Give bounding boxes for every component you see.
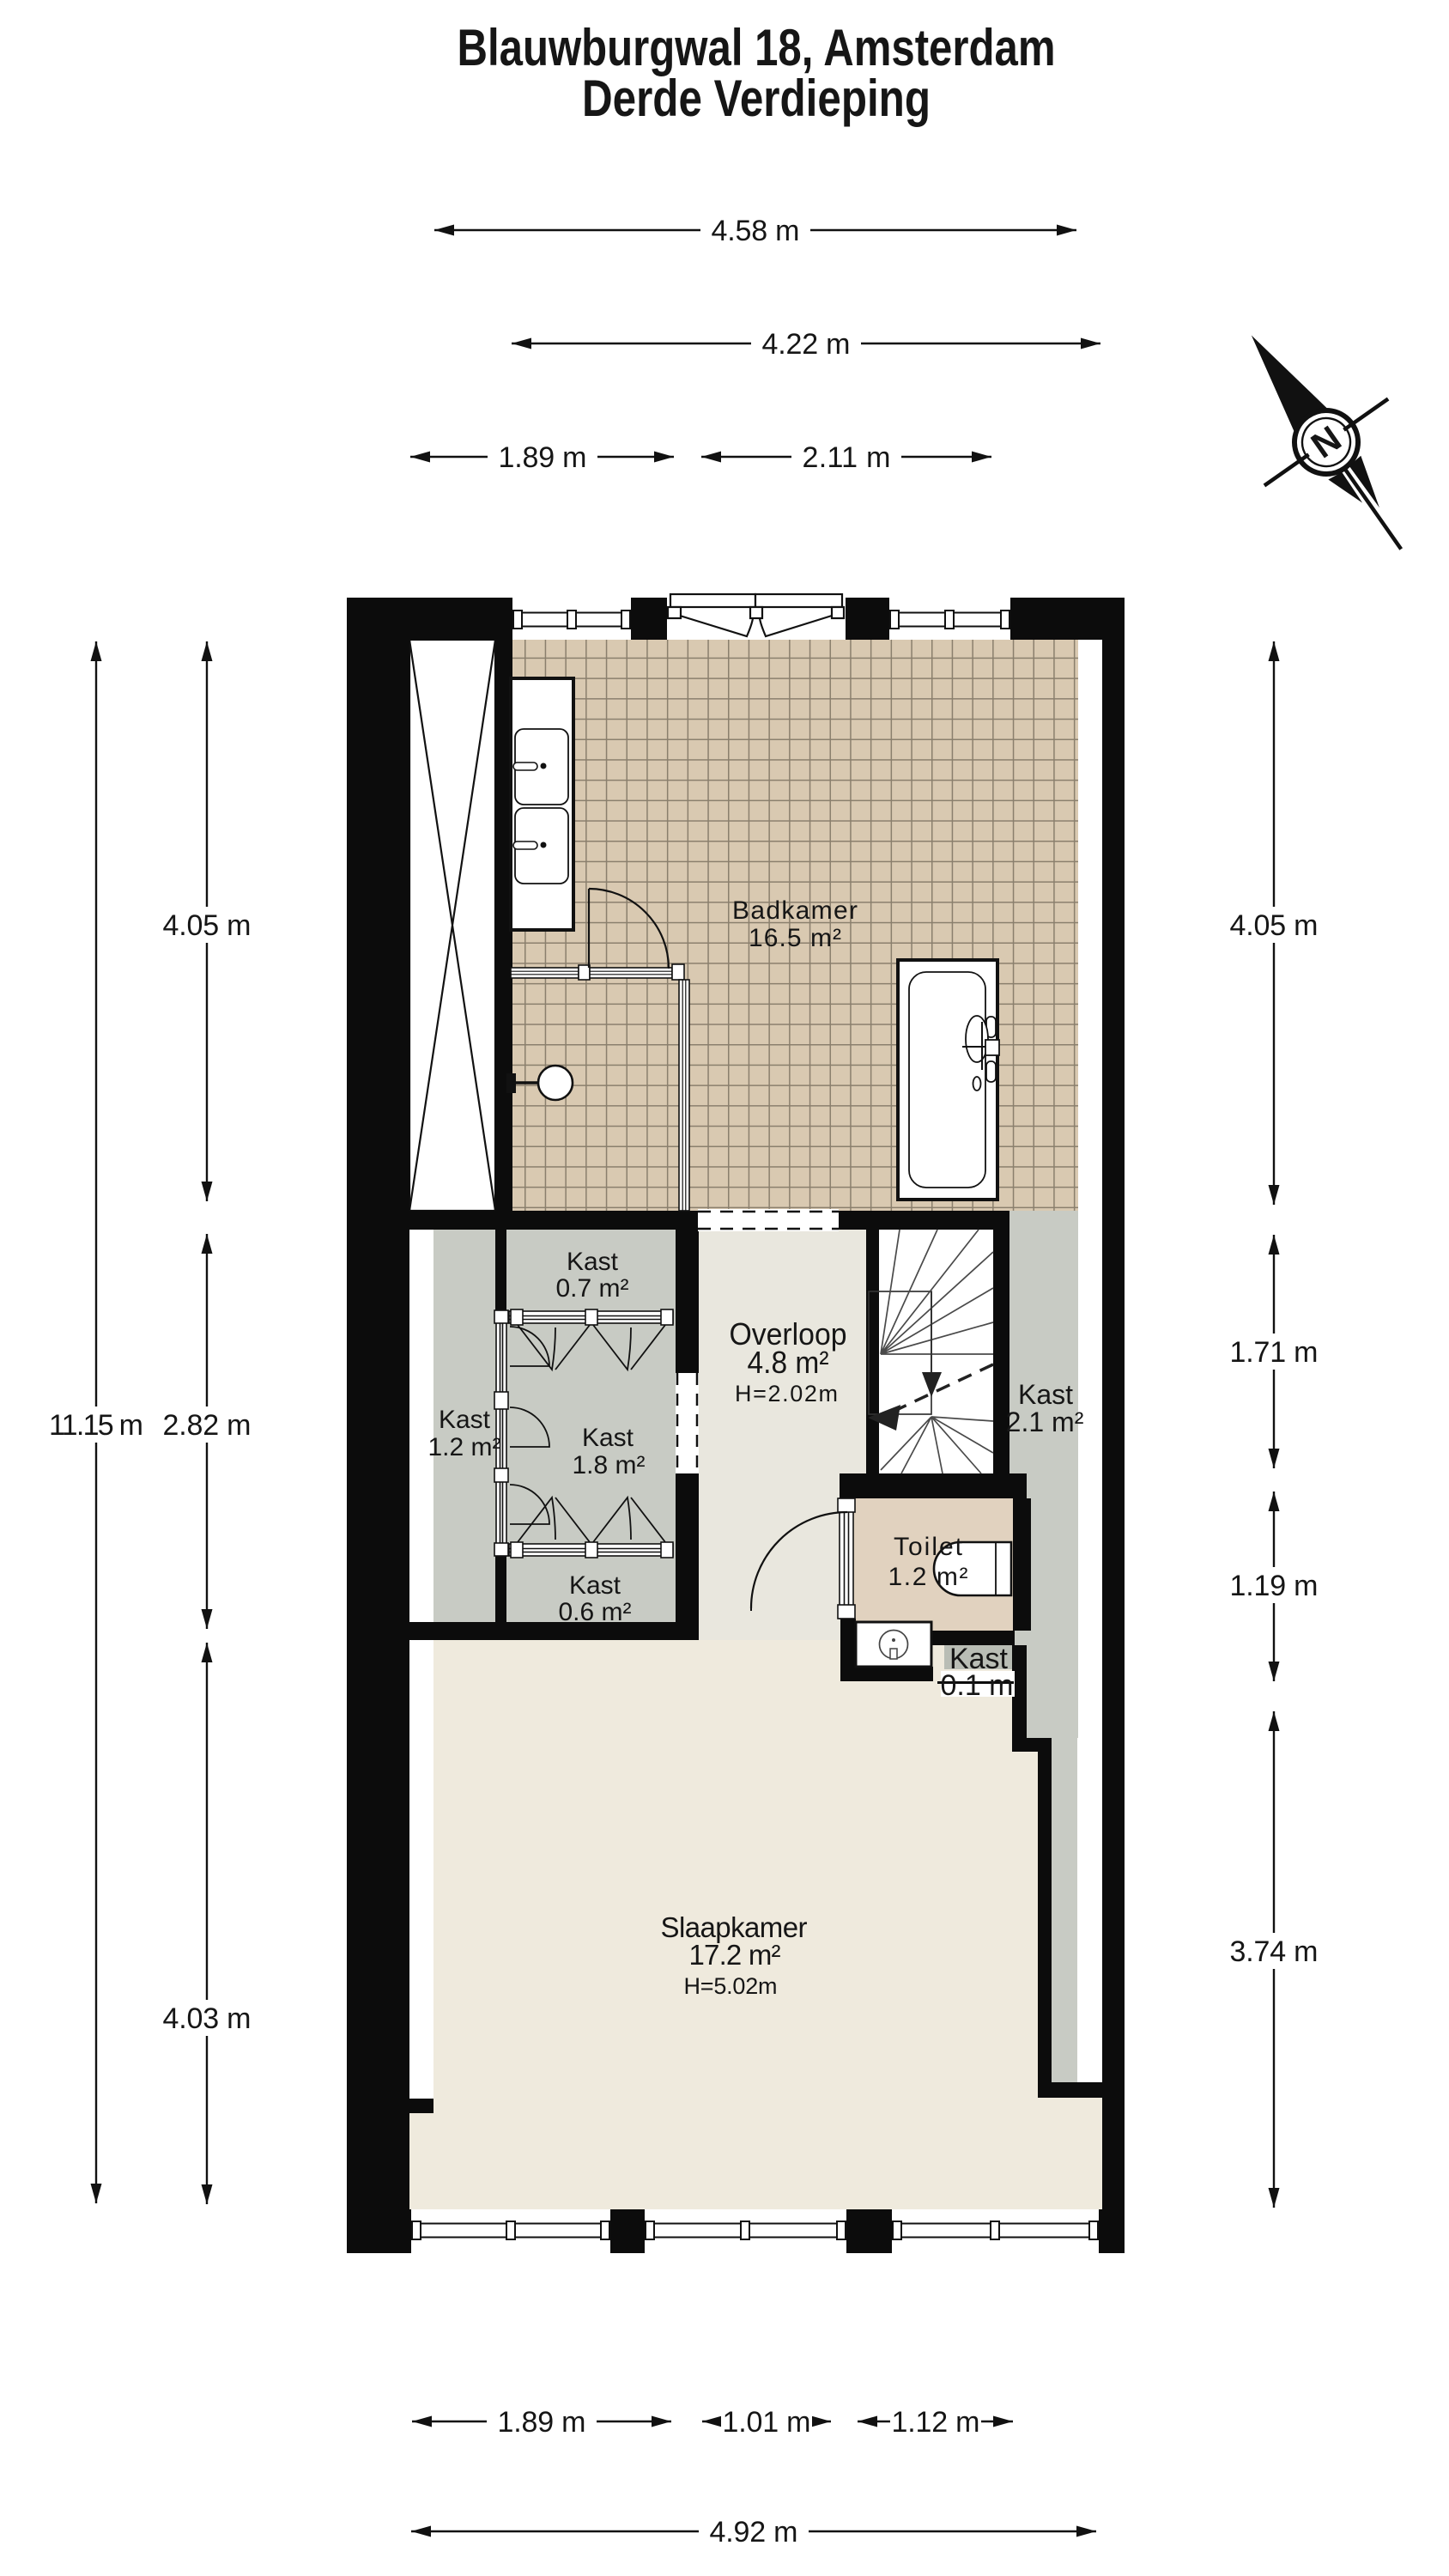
svg-text:1.19 m: 1.19 m bbox=[1230, 1570, 1319, 1602]
svg-text:Kast: Kast bbox=[439, 1406, 491, 1434]
svg-text:Badkamer: Badkamer bbox=[732, 896, 858, 925]
svg-text:1.2 m²: 1.2 m² bbox=[427, 1433, 500, 1461]
svg-text:2.1 m²: 2.1 m² bbox=[1006, 1406, 1084, 1437]
svg-text:16.5 m²: 16.5 m² bbox=[749, 924, 841, 952]
svg-text:Kast: Kast bbox=[569, 1571, 621, 1600]
svg-text:1.71 m: 1.71 m bbox=[1230, 1336, 1319, 1369]
svg-text:Blauwburgwal 18, Amsterdam: Blauwburgwal 18, Amsterdam bbox=[458, 19, 1056, 76]
svg-text:4.03 m: 4.03 m bbox=[163, 2002, 252, 2035]
svg-text:Toilet: Toilet bbox=[894, 1533, 963, 1561]
svg-text:4.05 m: 4.05 m bbox=[1230, 909, 1319, 942]
svg-text:11.15 m: 11.15 m bbox=[49, 1409, 143, 1442]
svg-text:1.12 m: 1.12 m bbox=[892, 2406, 980, 2439]
svg-text:17.2 m²: 17.2 m² bbox=[689, 1939, 781, 1971]
svg-text:H=2.02m: H=2.02m bbox=[735, 1381, 838, 1406]
svg-text:4.92 m: 4.92 m bbox=[710, 2516, 798, 2549]
svg-text:0.7 m²: 0.7 m² bbox=[555, 1274, 628, 1303]
svg-text:3.74 m: 3.74 m bbox=[1230, 1935, 1319, 1968]
svg-text:4.22 m: 4.22 m bbox=[762, 328, 851, 361]
svg-text:2.11 m: 2.11 m bbox=[803, 441, 891, 474]
svg-text:Kast: Kast bbox=[567, 1248, 619, 1276]
svg-text:H=5.02m: H=5.02m bbox=[684, 1973, 778, 1999]
svg-text:0.6 m²: 0.6 m² bbox=[558, 1598, 631, 1626]
svg-text:2.82 m: 2.82 m bbox=[163, 1409, 252, 1442]
svg-text:Kast: Kast bbox=[1018, 1379, 1073, 1410]
svg-text:1.89 m: 1.89 m bbox=[498, 2406, 586, 2439]
svg-text:1.2 m²: 1.2 m² bbox=[888, 1563, 968, 1591]
svg-text:0.1 m: 0.1 m bbox=[940, 1669, 1013, 1702]
svg-text:4.05 m: 4.05 m bbox=[163, 909, 252, 942]
svg-text:Derde Verdieping: Derde Verdieping bbox=[582, 70, 931, 127]
svg-text:1.01 m: 1.01 m bbox=[723, 2406, 811, 2439]
svg-text:Kast: Kast bbox=[582, 1424, 634, 1452]
svg-text:4.58 m: 4.58 m bbox=[712, 215, 800, 247]
svg-text:1.89 m: 1.89 m bbox=[499, 441, 587, 474]
svg-text:4.8 m²: 4.8 m² bbox=[748, 1345, 829, 1380]
svg-text:1.8 m²: 1.8 m² bbox=[572, 1451, 645, 1479]
